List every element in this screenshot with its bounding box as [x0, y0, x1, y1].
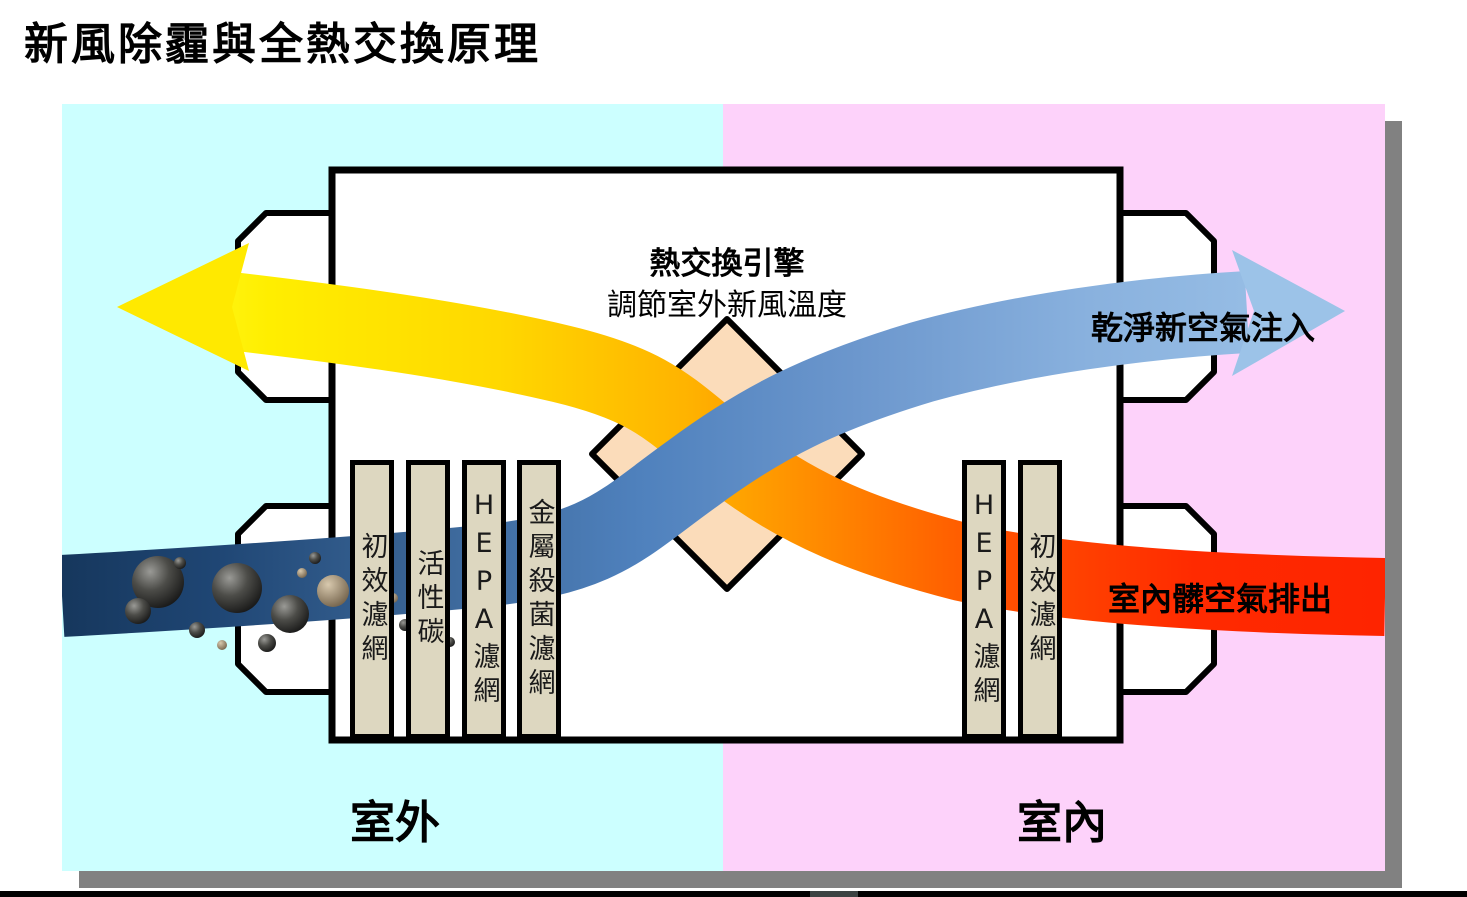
dirty-air-out-label: 室內髒空氣排出	[1075, 574, 1365, 620]
indoor-zone-label: 室內	[982, 786, 1142, 851]
filter-hepa-right: HEPA濾網	[962, 460, 1006, 739]
ventilation-diagram-art	[62, 104, 1385, 871]
outdoor-zone-label: 室外	[315, 786, 475, 851]
heat-exchanger-subtitle: 調節室外新風溫度	[552, 280, 902, 324]
bottom-rule-segment	[810, 891, 858, 897]
page-title: 新風除霾與全熱交換原理	[24, 8, 541, 72]
filter-activated-carbon: 活性碳	[406, 460, 450, 739]
filter-metal-sterilize: 金屬殺菌濾網	[517, 460, 561, 739]
clean-air-in-label: 乾淨新空氣注入	[1058, 303, 1348, 349]
filter-primary-right: 初效濾網	[1018, 460, 1062, 739]
bottom-rule	[0, 891, 1467, 897]
filter-hepa-left: HEPA濾網	[462, 460, 506, 739]
exhaust-arrowhead	[117, 243, 249, 371]
diagram-panel: 初效濾網 活性碳 HEPA濾網 金屬殺菌濾網 HEPA濾網 初效濾網 熱交換引擎…	[62, 104, 1385, 871]
filter-primary-left: 初效濾網	[350, 460, 394, 739]
heat-exchanger-title: 熱交換引擎	[567, 238, 887, 283]
